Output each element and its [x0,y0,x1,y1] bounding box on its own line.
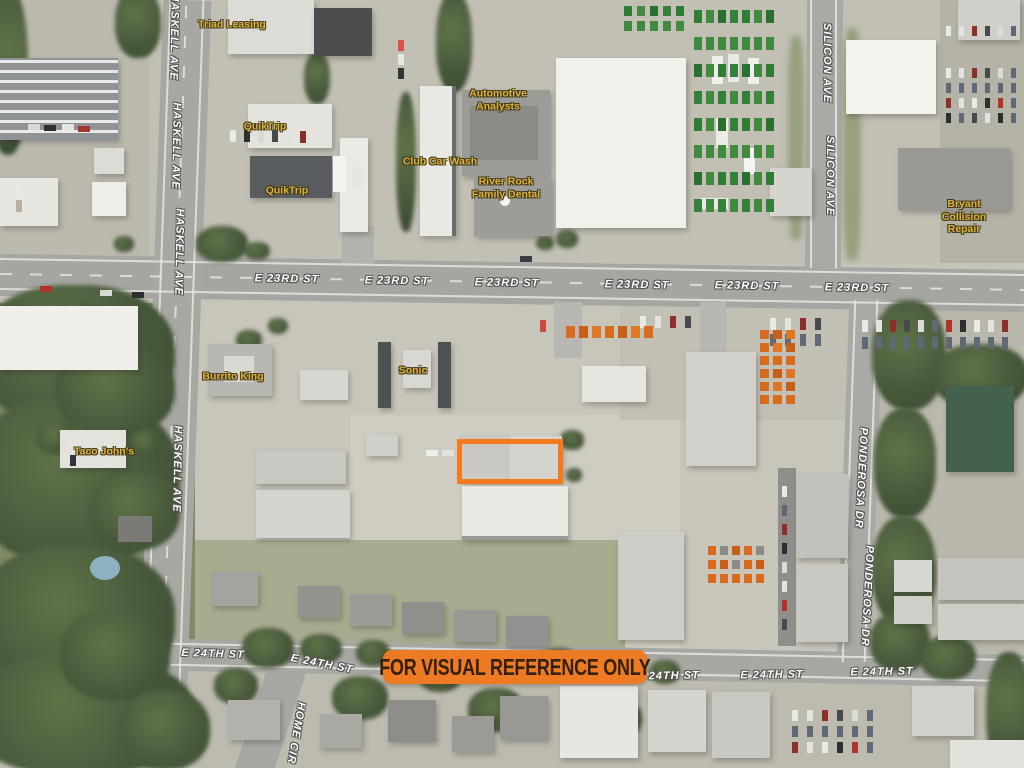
car [822,726,828,737]
street-label: E 24TH ST [740,668,804,681]
business-label: Triad Leasing [198,19,266,32]
road-line [810,0,812,268]
car [972,26,977,36]
equipment [579,326,588,338]
car [785,318,791,330]
equipment [766,10,774,23]
car [815,334,821,346]
car [822,710,828,721]
equipment [773,369,782,378]
car [792,710,798,721]
equipment [766,199,774,212]
car [782,524,787,535]
car [398,54,404,65]
equipment [756,574,764,583]
equipment [708,560,716,569]
car [918,337,924,349]
car [972,83,977,93]
equipment [742,199,750,212]
trees [556,230,578,248]
equipment [637,21,645,31]
building [438,342,451,408]
trees [874,408,936,518]
car [792,726,798,737]
car [230,130,236,142]
equipment [676,21,684,31]
car [782,486,787,497]
car [852,726,858,737]
equipment [786,369,795,378]
car [890,337,896,349]
car [960,337,966,349]
car [867,710,873,721]
street-label: E 23RD ST [475,276,540,289]
business-label: Taco John's [74,446,134,459]
car [974,337,980,349]
building [712,692,770,758]
equipment [754,199,762,212]
equipment [742,172,750,185]
equipment [694,37,702,50]
equipment [760,395,769,404]
equipment [637,6,645,16]
equipment [706,64,714,77]
equipment [618,326,627,338]
car [998,83,1003,93]
road-line [835,0,837,268]
truck [333,156,346,192]
car [770,318,776,330]
car [946,68,951,78]
equipment [786,330,795,339]
building [912,686,974,736]
car [959,83,964,93]
street-label: HASKELL AVE [167,0,181,81]
trees [114,236,134,252]
car [862,320,868,332]
equipment [631,326,640,338]
building [556,58,686,228]
building [938,604,1024,640]
car [988,320,994,332]
car [946,320,952,332]
driveway [700,302,726,352]
car [40,286,52,292]
green-roof-building [946,386,1014,472]
car [985,113,990,123]
car [959,68,964,78]
equipment [754,172,762,185]
car [782,619,787,630]
car [837,710,843,721]
car [998,113,1003,123]
equipment [718,145,726,158]
car [685,316,691,328]
equipment [650,6,658,16]
building [256,490,350,538]
car [540,320,546,332]
street-label: HASKELL AVE [169,102,183,189]
building [938,558,1024,600]
trees [304,52,330,104]
car [985,83,990,93]
house [388,700,436,742]
equipment [773,382,782,391]
house [500,696,548,740]
equipment [742,10,750,23]
car [782,505,787,516]
car [998,68,1003,78]
car [932,320,938,332]
building [462,486,568,540]
building [796,474,848,558]
car [998,98,1003,108]
equipment [732,560,740,569]
car [520,256,532,262]
car [398,40,404,51]
street-label: SILICON AVE [821,23,833,103]
car [985,26,990,36]
reference-banner-text: FOR VISUAL REFERENCE ONLY [379,654,650,681]
equipment [718,64,726,77]
car [904,337,910,349]
car [862,337,868,349]
equipment [744,560,752,569]
car [286,131,292,143]
car [998,26,1003,36]
business-label: Sonic [399,365,428,378]
equipment [756,560,764,569]
equipment [773,330,782,339]
building [894,560,932,592]
building [366,434,398,456]
building [0,306,138,370]
street-label: E 24TH ST [850,665,914,678]
equipment [706,172,714,185]
building [894,596,932,624]
equipment [786,356,795,365]
trees [196,226,248,262]
equipment [744,546,752,555]
equipment [730,172,738,185]
car [815,318,821,330]
car [959,113,964,123]
car [782,562,787,573]
trees [536,236,554,250]
car [132,292,144,298]
building [470,106,538,160]
equipment [720,546,728,555]
equipment [720,574,728,583]
equipment [773,343,782,352]
car [960,320,966,332]
equipment [718,199,726,212]
equipment [773,356,782,365]
equipment [694,172,702,185]
truck [352,166,362,188]
equipment [760,356,769,365]
street-label: E 23RD ST [715,279,780,292]
car [1011,113,1016,123]
car [946,337,952,349]
car [782,543,787,554]
car [852,742,858,753]
building [950,740,1024,768]
car [946,98,951,108]
trees [130,430,160,456]
car [867,742,873,753]
business-label: Automotive Analysts [469,87,527,112]
equipment [786,382,795,391]
equipment [744,574,752,583]
car [946,83,951,93]
car [959,26,964,36]
building [300,370,348,400]
equipment [706,118,714,131]
equipment [756,546,764,555]
equipment [730,118,738,131]
trees [242,628,294,668]
car [807,726,813,737]
car [890,320,896,332]
building [94,148,124,174]
car [1011,83,1016,93]
equipment [754,37,762,50]
car [985,98,990,108]
equipment [742,145,750,158]
equipment [773,395,782,404]
car [670,316,676,328]
car [974,320,980,332]
house [212,572,258,606]
building [618,532,684,640]
equipment [754,91,762,104]
equipment [718,91,726,104]
car [1011,26,1016,36]
property-highlight-box [457,439,563,484]
trees [115,0,161,58]
reference-banner: FOR VISUAL REFERENCE ONLY [383,650,647,684]
car [655,316,661,328]
equipment [663,6,671,16]
equipment [624,6,632,16]
equipment [718,37,726,50]
building [0,178,58,226]
trees [244,242,270,260]
house [350,594,392,626]
car [867,726,873,737]
car [800,334,806,346]
car [792,742,798,753]
business-label: Club Car Wash [403,156,477,169]
equipment [694,10,702,23]
equipment [742,37,750,50]
building [314,8,372,56]
equipment [718,172,726,185]
street-label: E 23RD ST [605,278,670,291]
building [256,450,346,484]
parking-strip [778,468,796,646]
equipment [706,37,714,50]
building [462,536,568,540]
equipment [730,10,738,23]
equipment [742,64,750,77]
house [320,714,362,748]
car [800,318,806,330]
equipment [694,91,702,104]
car [807,710,813,721]
equipment [742,91,750,104]
shed [118,516,152,542]
equipment [732,574,740,583]
car [782,581,787,592]
equipment [720,560,728,569]
street-label: E 24TH ST [181,647,245,661]
trees [920,636,976,680]
building [92,182,126,216]
car [442,450,454,456]
car [1002,320,1008,332]
car [100,290,112,296]
car [972,98,977,108]
car [972,113,977,123]
business-label: QuikTrip [244,121,287,134]
car [837,742,843,753]
equipment [730,37,738,50]
equipment [694,64,702,77]
trees [560,430,584,450]
car [988,337,994,349]
building [686,352,756,466]
car [876,320,882,332]
car [876,337,882,349]
equipment [760,343,769,352]
equipment [732,546,740,555]
equipment [706,10,714,23]
equipment [650,21,658,31]
car [78,126,90,132]
car [28,124,40,130]
car [822,742,828,753]
equipment [754,118,762,131]
trees [120,690,210,768]
street-label: SILICON AVE [824,136,836,216]
car [1011,68,1016,78]
equipment [786,395,795,404]
car [946,26,951,36]
house [228,700,280,740]
equipment [624,21,632,31]
equipment [694,145,702,158]
car [852,710,858,721]
equipment [766,145,774,158]
car [837,726,843,737]
equipment [663,21,671,31]
equipment [706,91,714,104]
equipment [708,574,716,583]
car [904,320,910,332]
equipment [766,91,774,104]
house [506,616,548,646]
building [796,564,848,642]
car [782,600,787,611]
car [918,320,924,332]
trees [872,300,946,410]
house [298,586,340,618]
business-label: River Rock Family Dental [472,175,540,200]
car [972,68,977,78]
equipment [742,118,750,131]
building [648,690,706,752]
pool [90,556,120,580]
trees [436,0,472,92]
house [454,610,496,642]
car [62,124,74,130]
equipment [644,326,653,338]
equipment [754,145,762,158]
equipment [766,118,774,131]
equipment [694,199,702,212]
street-label: E 23RD ST [255,272,320,285]
equipment [766,37,774,50]
equipment [730,199,738,212]
equipment [786,343,795,352]
aerial-map: FOR VISUAL REFERENCE ONLY HASKELL AVEHAS… [0,0,1024,768]
car [807,742,813,753]
car [300,131,306,143]
equipment [754,64,762,77]
equipment [676,6,684,16]
trees [566,468,582,482]
equipment [760,369,769,378]
business-label: Bryant Collision Repair [934,198,994,236]
business-label: Burrito King [202,371,263,384]
car [44,125,56,131]
equipment [708,546,716,555]
equipment [694,118,702,131]
business-label: QuikTrip [266,185,309,198]
equipment [730,64,738,77]
equipment [760,330,769,339]
equipment [718,118,726,131]
equipment [605,326,614,338]
car [959,98,964,108]
equipment [706,145,714,158]
trees [268,318,288,334]
equipment [730,91,738,104]
car [1002,337,1008,349]
street-label: E 23RD ST [365,274,430,287]
equipment [592,326,601,338]
car [16,184,22,196]
house [402,602,444,634]
equipment [730,145,738,158]
equipment [760,382,769,391]
car [932,337,938,349]
car [426,450,438,456]
trees [214,668,258,704]
equipment [718,10,726,23]
building [846,40,936,114]
car [946,113,951,123]
car [1011,98,1016,108]
equipment [766,172,774,185]
building [582,366,646,402]
car [398,68,404,79]
street-label: HASKELL AVE [170,425,184,512]
building [0,58,118,140]
street-label: HASKELL AVE [172,208,186,295]
